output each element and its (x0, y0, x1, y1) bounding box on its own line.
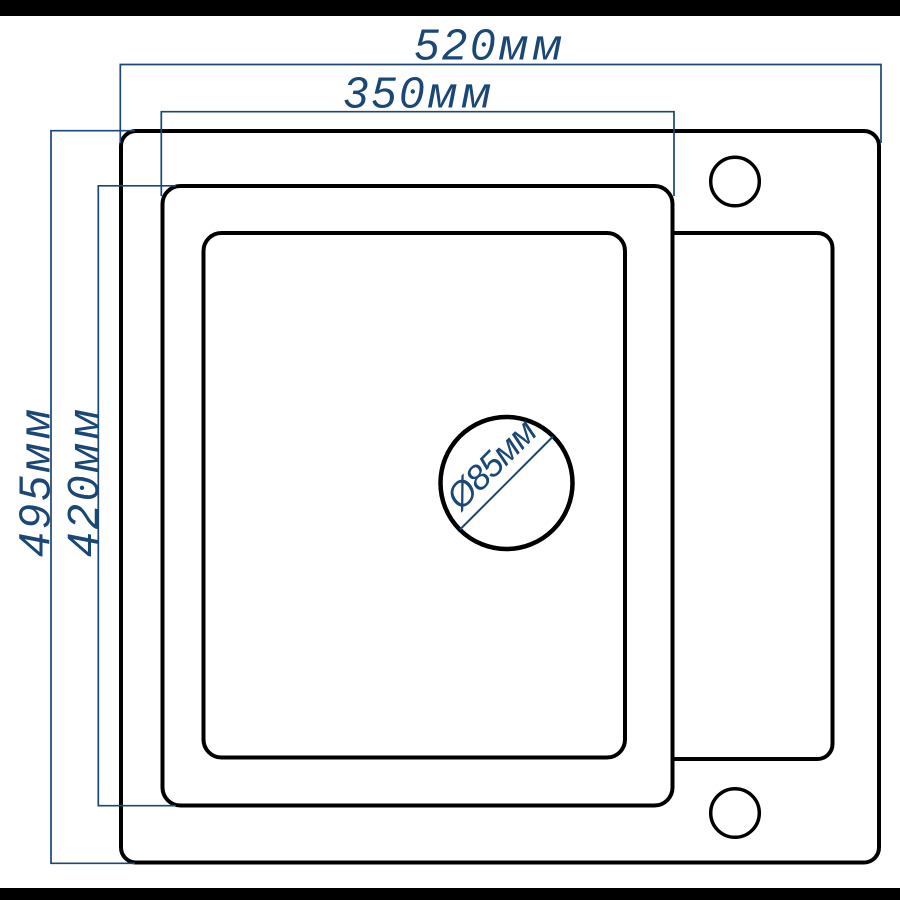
svg-text:520мм: 520мм (414, 21, 565, 70)
svg-text:420мм: 420мм (59, 406, 108, 557)
svg-text:350мм: 350мм (343, 68, 494, 117)
svg-text:495мм: 495мм (11, 406, 60, 557)
